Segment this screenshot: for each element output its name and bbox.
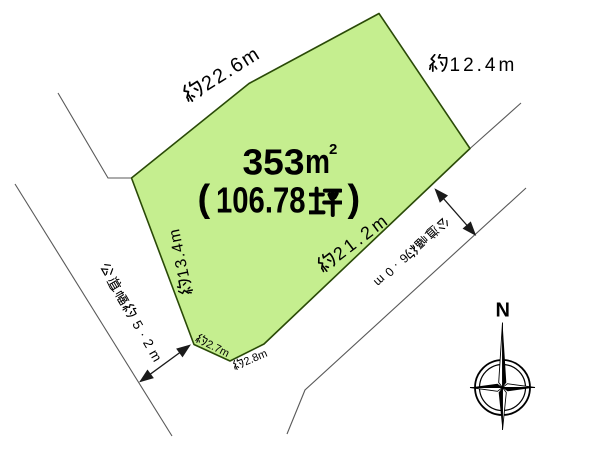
svg-text:353: 353	[243, 142, 305, 183]
svg-text:5·2m: 5·2m	[129, 318, 164, 364]
svg-text:12.4m: 12.4m	[450, 55, 518, 76]
svg-text:6·0m: 6·0m	[371, 251, 411, 290]
svg-text:m: m	[305, 143, 330, 181]
svg-text:2: 2	[329, 141, 337, 158]
svg-text:): )	[348, 178, 361, 220]
svg-text:106.78: 106.78	[216, 180, 306, 221]
svg-text:N: N	[496, 300, 510, 322]
svg-text:(: (	[198, 178, 211, 220]
